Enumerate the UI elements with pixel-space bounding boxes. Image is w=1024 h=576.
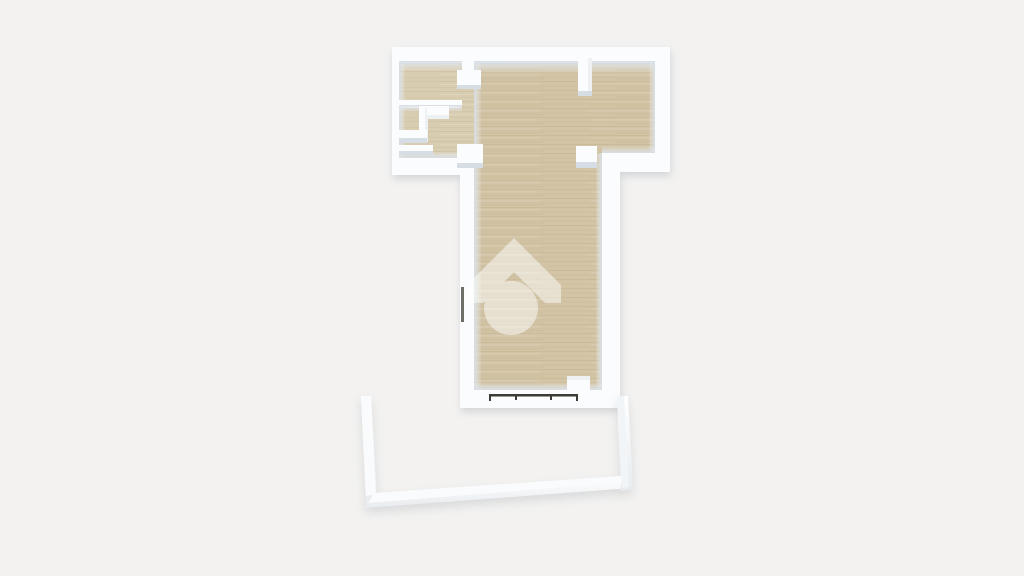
floorplan-render	[0, 0, 1024, 576]
doorway-opening-floor	[460, 86, 474, 148]
top-wall-inner-face	[399, 61, 462, 71]
divider-wall-inner-face	[474, 63, 481, 390]
door-jamb-pillar-lower	[457, 144, 483, 168]
counter-block	[427, 106, 449, 119]
house-body-watermark-icon	[484, 281, 538, 335]
top-wall-inner-face	[474, 61, 655, 73]
right-wall-inner-face	[596, 153, 602, 390]
floorplan-screenshot	[0, 0, 1024, 576]
pillar-step-corner	[576, 146, 597, 168]
arm-bottom-wall-inner-face	[602, 147, 655, 153]
wall-stub-left-room	[399, 145, 433, 155]
wall-stub-top	[578, 58, 592, 96]
door-left-wall	[461, 287, 464, 322]
pillar-bottom-wall	[567, 376, 590, 393]
door-jamb-pillar-upper	[457, 70, 481, 89]
closet-bottom-wall	[399, 130, 427, 143]
arm-right-wall-inner-face	[649, 63, 655, 153]
